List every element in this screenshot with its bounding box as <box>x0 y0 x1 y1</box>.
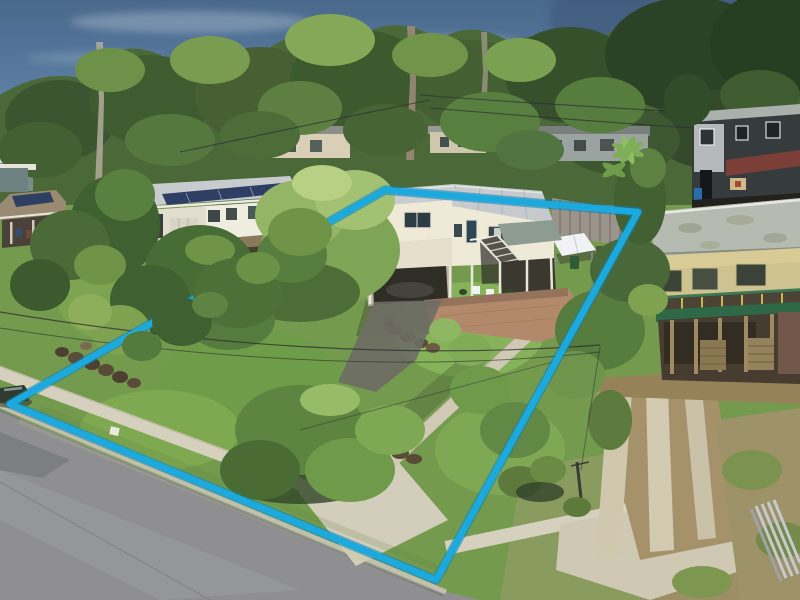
pot-plant <box>459 289 467 295</box>
cloud <box>70 11 310 33</box>
timber-cribbing <box>700 340 726 370</box>
stilted-neighbor-house <box>648 198 800 384</box>
patio-chair <box>472 286 480 294</box>
blue-barrel <box>694 188 702 201</box>
wheelie-bin <box>570 256 579 269</box>
aerial-photo <box>0 0 800 600</box>
brick-pier <box>778 312 800 374</box>
window <box>454 224 462 237</box>
